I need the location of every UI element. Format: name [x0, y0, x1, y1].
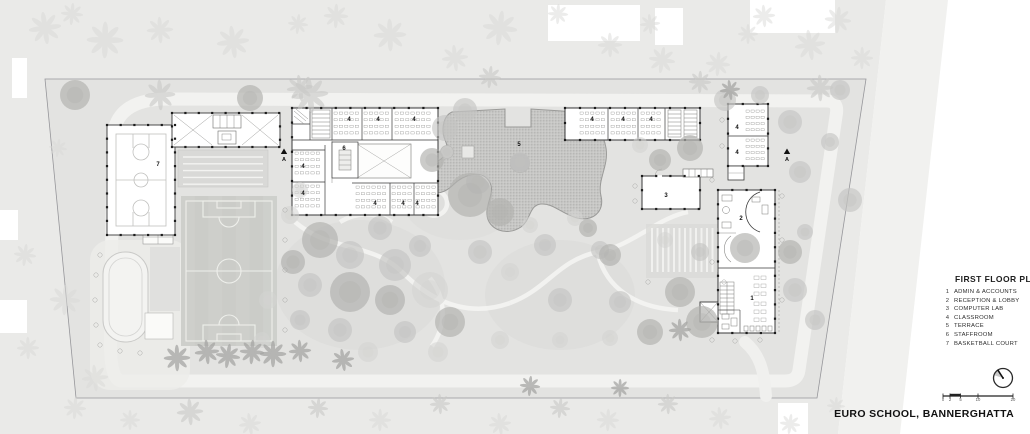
section-marker-label: A: [282, 157, 286, 163]
palm-tree: [369, 409, 391, 431]
graphic-scale-bar: 0 2 5 10 20: [938, 392, 1018, 406]
amphitheatre-steps: [646, 224, 724, 278]
legend-item: 2 RECEPTION & LOBBY: [941, 297, 1030, 306]
palm-tree: [611, 379, 629, 397]
palm-tree: [17, 337, 39, 359]
scale-tick-labels: 0 2 5 10 20: [938, 397, 1018, 403]
project-title: EURO SCHOOL, BANNERGHATTA: [834, 408, 1014, 420]
palm-tree: [164, 345, 191, 372]
basketball-court: [107, 125, 175, 235]
legend-item: 3 COMPUTER LAB: [941, 305, 1030, 314]
palm-tree: [260, 341, 287, 368]
north-arrow-icon: [990, 366, 1016, 390]
drawing-title: FIRST FLOOR PLAN: [955, 274, 1030, 284]
palm-tree: [851, 47, 873, 69]
football-field: [181, 196, 277, 346]
palm-tree: [120, 410, 140, 430]
floor-plan-canvas: 7653214444444444444AA: [0, 0, 1030, 434]
courtyard: [357, 144, 411, 178]
palm-tree: [87, 22, 124, 59]
palm-tree: [738, 24, 758, 44]
multipurpose-hall: [172, 113, 280, 147]
legend-item: 6 STAFFROOM: [941, 331, 1030, 340]
floor-plan-sheet: 7653214444444444444AA FIRST FLOOR PLAN 1…: [0, 0, 1030, 434]
section-marker-label: A: [785, 157, 789, 163]
lane-pool: [178, 150, 268, 187]
palm-tree: [598, 33, 623, 58]
legend: FIRST FLOOR PLAN 1 ADMIN & ACCOUNTS 2 RE…: [941, 274, 1030, 348]
legend-item: 1 ADMIN & ACCOUNTS: [941, 288, 1030, 297]
legend-item: 5 TERRACE: [941, 322, 1030, 331]
legend-item: 7 BASKETBALL COURT: [941, 340, 1030, 349]
legend-item: 4 CLASSROOM: [941, 314, 1030, 323]
